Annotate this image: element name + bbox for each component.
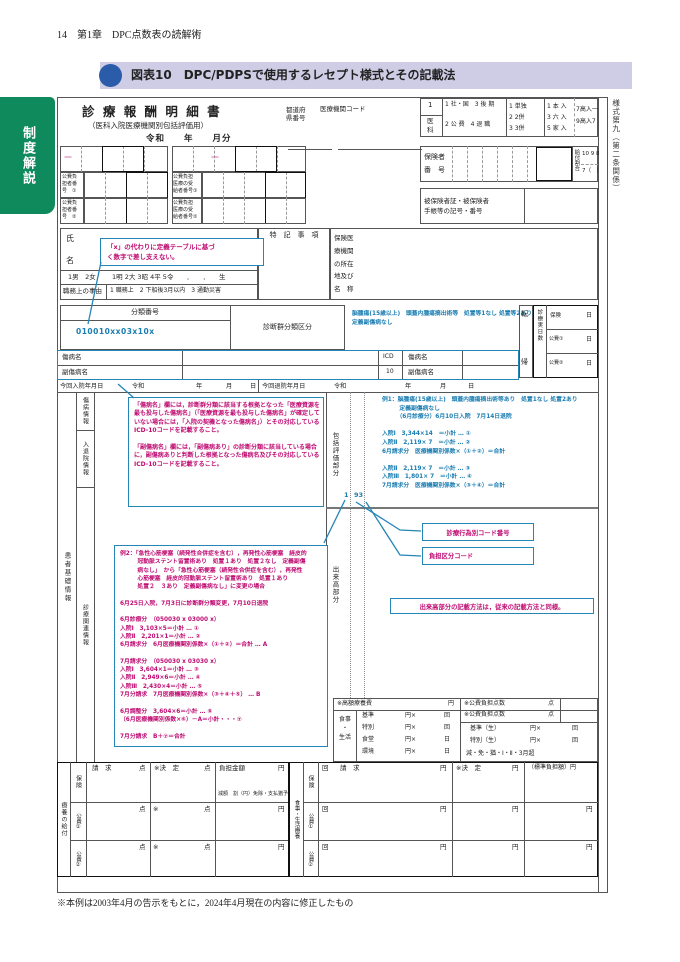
kai-unit: 回 bbox=[444, 713, 450, 720]
yen-unit: 円 bbox=[586, 806, 593, 813]
decision-header: ※決 定 bbox=[456, 765, 481, 772]
decision-header: ※決 定 bbox=[154, 765, 179, 772]
code-column-dotline bbox=[350, 392, 351, 698]
disease-note-text: 「傷病名」欄には，診断群分類に該当する根拠となった「医療資源を最も投与した傷病名… bbox=[134, 402, 320, 469]
outcome-label-2: 帰 bbox=[521, 358, 528, 366]
callout-burden-box: 負担区分コード bbox=[422, 547, 534, 565]
insured-card-label: 被保険者証・被保険者 手帳等の記号・番号 bbox=[424, 196, 489, 216]
figure-bullet-icon bbox=[99, 64, 122, 87]
grid-line bbox=[60, 320, 230, 321]
points-unit: 点 bbox=[204, 844, 211, 851]
icd10-label: 10 bbox=[386, 369, 394, 376]
grid-dash-line bbox=[244, 172, 245, 198]
sample-code-1: 1 bbox=[344, 492, 349, 499]
grid-dash-line bbox=[527, 146, 528, 182]
grid-dash-line bbox=[223, 198, 224, 224]
grid-line bbox=[524, 762, 525, 877]
day-unit: 日 bbox=[586, 361, 592, 368]
grid-line bbox=[303, 802, 598, 803]
example2-text: 例2：「急性心筋梗塞（続発性合併症を含む），再発性心筋梗塞 経皮的 冠動脈ステン… bbox=[120, 550, 322, 741]
grid-line bbox=[60, 284, 258, 285]
icd-label: ICD bbox=[383, 354, 394, 361]
callout-dekidaka-text: 出来高部分の記載方法は，従来の記載方法と同様。 bbox=[420, 602, 565, 611]
burden-amount-header: 負担金額 bbox=[219, 765, 245, 772]
kind-nyuin: 1 本 入 3 六 入 5 家 入 bbox=[547, 101, 567, 134]
grid-line bbox=[560, 698, 561, 722]
kohi-bold-cell bbox=[235, 146, 277, 172]
insurer-number-label: 保険者 番 号 bbox=[424, 151, 445, 177]
yen-unit: 円 bbox=[440, 806, 447, 813]
day-unit: 日 bbox=[586, 313, 592, 320]
kai-unit: 回 bbox=[444, 725, 450, 732]
grid-line bbox=[420, 115, 442, 116]
grid-line bbox=[544, 98, 545, 137]
kohi-recv2-label: 公費負担 医療の受 給者番号② bbox=[173, 200, 197, 221]
note-x-box: 「x」の代わりに定義テーブルに基づ く数字で差し支えない。 bbox=[100, 238, 264, 266]
year-label: 年 bbox=[405, 383, 411, 390]
grid-line bbox=[182, 351, 183, 379]
kohi-bold-cell bbox=[102, 146, 144, 172]
admission-date-label: 今回入院年月日 bbox=[60, 383, 103, 390]
patient-base-info-label: 患者基礎情報 bbox=[62, 552, 72, 603]
row-kohi1-label: 公費① bbox=[307, 813, 315, 830]
kind-ika-label: 医 科 bbox=[427, 117, 434, 135]
disease-note-box: 「傷病名」欄には，診断群分類に該当する根拠となった「医療資源を最も投与した傷病名… bbox=[128, 397, 324, 507]
callout-burden-text: 負担区分コード bbox=[429, 553, 473, 560]
row-kohi2-cell: 公費② bbox=[70, 841, 86, 877]
sub-disease-label: 副傷病名 bbox=[408, 369, 434, 376]
grid-line bbox=[460, 698, 461, 762]
care-info-cell: 診療関連情報 bbox=[76, 487, 94, 762]
example1-text: 例1：脳腫瘍(15歳以上) 頭蓋内腫瘍摘出術等あり 処置1なし 処置2あり 定義… bbox=[382, 396, 596, 491]
outcome-label-1: 転 bbox=[521, 310, 528, 318]
kohi-payer2-label: 公費負 担者番 号 ② bbox=[62, 200, 77, 221]
points-unit: 点 bbox=[139, 765, 146, 772]
row-kohi2-label: 公費② bbox=[74, 851, 82, 868]
days-row-hoken: 保険 bbox=[550, 313, 561, 319]
yen-x-unit: 円× bbox=[530, 726, 541, 733]
yen-unit: 円 bbox=[512, 806, 519, 813]
day-unit: 日 bbox=[586, 337, 592, 344]
kohi-recv1-label: 公費負担 医療の受 給者番号① bbox=[173, 174, 197, 195]
benefit-ratio-label: 給付割合 bbox=[573, 149, 579, 171]
asterisk-mark: ※ bbox=[153, 806, 158, 813]
yen-unit: 円 bbox=[440, 844, 447, 851]
disease-name-label: 傷病名 bbox=[62, 354, 82, 361]
style-number: 様式第九（第二条関係） bbox=[611, 99, 620, 299]
meal-life-care-cell: 食事・生活療養 bbox=[290, 762, 303, 877]
inout-info-cell: 入退院情報 bbox=[76, 430, 94, 487]
institution-code-line bbox=[338, 149, 422, 150]
grid-line bbox=[215, 762, 216, 877]
grid-line bbox=[506, 98, 507, 137]
grid-dash-line bbox=[581, 164, 598, 165]
yen-x-unit: 円× bbox=[405, 749, 416, 756]
footnote: ※本例は2003年4月の告示をもとに，2024年4月現在の内容に修正したもの bbox=[57, 898, 353, 908]
tokubetsu-sei-label: 特別（生） bbox=[470, 738, 500, 745]
form-title: 診 療 報 酬 明 細 書 bbox=[82, 105, 222, 119]
benefit-ratio-bottom: 7（ ） bbox=[582, 168, 602, 174]
kohi-points-label: ※公費負担点数 bbox=[464, 712, 505, 719]
dekidaka-cell: 出来高部分 bbox=[326, 530, 344, 640]
kohi-dash-mark: — bbox=[64, 152, 72, 161]
inout-info-label: 入退院情報 bbox=[81, 441, 90, 476]
day-unit: 日 bbox=[444, 737, 450, 744]
grid-line bbox=[452, 762, 453, 877]
grid-dash-line bbox=[497, 146, 498, 182]
row-kohi1-cell: 公費① bbox=[303, 803, 318, 839]
kai-unit: 回 bbox=[322, 765, 329, 772]
grid-line bbox=[58, 365, 518, 366]
code-column-dotline bbox=[364, 392, 365, 698]
yen-unit: 円 bbox=[440, 765, 447, 772]
class-number-value: 010010xx03x10x bbox=[76, 328, 155, 337]
row-hoken-cell: 保険 bbox=[303, 764, 318, 800]
request-header: 請 求 bbox=[340, 765, 360, 772]
section-divider-line bbox=[326, 507, 598, 509]
row-kohi2-label: 公費② bbox=[307, 851, 315, 868]
yen-unit: 円 bbox=[512, 844, 519, 851]
grid-line bbox=[318, 762, 319, 877]
ryoyo-label: 療養の給付 bbox=[59, 802, 68, 837]
kind-ika-number: 1 bbox=[428, 101, 432, 109]
grid-dash-line bbox=[244, 198, 245, 224]
dpc-category-value: 脳腫瘍(15歳以上) 頭蓋内腫瘍摘出術等 処置等1なし 処置等2あり 定義副傷病… bbox=[352, 310, 532, 328]
grid-dash-line bbox=[482, 146, 483, 182]
hokatsu-label: 包括評価部分 bbox=[330, 432, 340, 477]
grid-dash-line bbox=[277, 146, 278, 172]
book-page: 14 第1章 DPC点数表の読解術 図表10 DPC/PDPSで使用するレセプト… bbox=[0, 0, 680, 962]
kai-unit: 回 bbox=[322, 806, 329, 813]
callout-code-box: 診療行為別コード番号 bbox=[422, 523, 534, 541]
grid-line bbox=[546, 329, 598, 330]
meal-life-label: 食事 ・ 生活 bbox=[334, 715, 356, 742]
ryoyo-cell: 療養の給付 bbox=[57, 762, 70, 877]
tokki-header: 特 記 事 項 bbox=[258, 231, 330, 239]
points-unit: 点 bbox=[204, 806, 211, 813]
kohi-points-label: ※公費負担点数 bbox=[464, 701, 505, 708]
era-label: 令和 bbox=[132, 383, 144, 390]
grid-line bbox=[546, 305, 547, 378]
row-kohi1-label: 公費① bbox=[74, 813, 82, 830]
kohi-cells bbox=[84, 198, 168, 224]
yen-x-unit: 円× bbox=[405, 737, 416, 744]
sex-options: 1男 2女 bbox=[68, 274, 96, 281]
dpc-category-label: 診断群分類区分 bbox=[230, 323, 345, 331]
disease-name-label: 傷病名 bbox=[408, 354, 428, 361]
hospital-box bbox=[330, 228, 598, 300]
reduction-note: 減額 割（円）免除・支払猶予 bbox=[218, 792, 288, 798]
kind-row2: 2 公 費 4 退 職 bbox=[445, 122, 490, 129]
chapter-tab: 制度解説 bbox=[0, 97, 55, 214]
request-header: 請 求 bbox=[92, 765, 112, 772]
grid-line bbox=[462, 351, 463, 379]
yen-unit: 円 bbox=[586, 844, 593, 851]
days-row-kohi2: 公費② bbox=[549, 361, 563, 367]
class-number-label: 分類番号 bbox=[60, 308, 230, 316]
form-inner-right-line bbox=[598, 97, 599, 893]
row-hoken-cell: 保険 bbox=[70, 764, 86, 800]
grid-line bbox=[60, 270, 258, 271]
points-unit: 点 bbox=[139, 806, 146, 813]
yen-unit: 円 bbox=[278, 806, 285, 813]
grid-line bbox=[356, 710, 357, 762]
sub-disease-label: 副傷病名 bbox=[62, 369, 88, 376]
example2-box: 例2：「急性心筋梗塞（続発性合併症を含む），再発性心筋梗塞 経皮的 冠動脈ステン… bbox=[114, 545, 328, 747]
yen-unit: 円 bbox=[278, 844, 285, 851]
meal-row-kijun: 基準 bbox=[362, 713, 374, 720]
era-month-field: 令和 年 月分 bbox=[146, 135, 232, 145]
grid-dash-line bbox=[144, 146, 145, 172]
kind-row1: 1 社・国 3 後 期 bbox=[445, 102, 494, 109]
grid-line bbox=[258, 380, 259, 392]
yen-unit: 円 bbox=[512, 765, 519, 772]
grid-dash-line bbox=[147, 198, 148, 224]
grid-dash-line bbox=[105, 172, 106, 198]
meal-row-shokudo: 食堂 bbox=[362, 737, 374, 744]
sample-code-93: 93 bbox=[354, 492, 363, 499]
discharge-date-label: 今回退院年月日 bbox=[262, 383, 305, 390]
grid-line bbox=[94, 392, 95, 762]
kind-tandoku: 1 単独 2 2併 3 3併 bbox=[509, 101, 527, 134]
grid-line bbox=[460, 722, 598, 723]
grid-dash-line bbox=[105, 198, 106, 224]
dekidaka-label: 出来高部分 bbox=[330, 566, 340, 604]
month-label: 月 bbox=[226, 383, 232, 390]
name-label-2: 名 bbox=[66, 256, 74, 265]
grid-line bbox=[546, 353, 598, 354]
asterisk-mark: ※ bbox=[153, 844, 158, 851]
reduction-options: 減・免・猶・Ⅰ・Ⅱ・3月超 bbox=[466, 751, 535, 758]
kai-unit: 回 bbox=[322, 844, 329, 851]
row-kohi2-cell: 公費② bbox=[303, 841, 318, 877]
row-hoken-label: 保険 bbox=[74, 775, 83, 789]
grid-dash-line bbox=[193, 146, 194, 172]
callout-dekidaka-box: 出来高部分の記載方法は，従来の記載方法と同様。 bbox=[390, 598, 594, 614]
day-unit: 日 bbox=[444, 749, 450, 756]
note-x-text: 「x」の代わりに定義テーブルに基づ く数字で差し支えない。 bbox=[107, 243, 215, 262]
kohi-payer1-label: 公費負 担者番 号 ① bbox=[62, 174, 77, 195]
grid-dash-line bbox=[286, 198, 287, 224]
points-unit: 点 bbox=[548, 712, 554, 719]
form-subtitle: （医科入院医療機関別包括評価用） bbox=[88, 122, 208, 131]
year-label: 年 bbox=[196, 383, 202, 390]
grid-dash-line bbox=[223, 172, 224, 198]
day-label: 日 bbox=[250, 383, 256, 390]
grid-line bbox=[442, 98, 443, 137]
yen-x-unit: 円× bbox=[405, 713, 416, 720]
kijun-sei-label: 基準（生） bbox=[470, 726, 500, 733]
care-info-label: 診療関連情報 bbox=[81, 604, 90, 646]
meal-life-care-label: 食事・生活療養 bbox=[293, 800, 301, 839]
kind-kounyu: 7高入一 9高入7 bbox=[576, 104, 598, 128]
figure-title: 図表10 DPC/PDPSで使用するレセプト様式とその記載法 bbox=[131, 69, 455, 83]
grid-dash-line bbox=[467, 146, 468, 182]
yen-unit: 円 bbox=[448, 701, 454, 708]
pref-number-label: 都道府 県番号 bbox=[286, 106, 306, 122]
hospital-label: 保険医 療機関 の所在 地及び 名 称 bbox=[334, 232, 354, 296]
patient-base-info-cell: 患者基礎情報 bbox=[58, 392, 76, 762]
kohi-cells bbox=[202, 198, 306, 224]
grid-line bbox=[524, 188, 525, 224]
points-unit: 点 bbox=[204, 765, 211, 772]
insurer-bold-cell bbox=[536, 147, 572, 181]
benefit-ratio-top: 10 9 8 bbox=[582, 151, 600, 157]
grid-line bbox=[70, 802, 288, 803]
standard-burden-header: （標準負担額）円 bbox=[528, 765, 576, 772]
chapter-tab-label: 制度解説 bbox=[18, 126, 37, 186]
row-kohi1-cell: 公費① bbox=[70, 803, 86, 839]
grid-dash-line bbox=[81, 146, 82, 172]
hokatsu-cell: 包括評価部分 bbox=[326, 398, 344, 510]
points-unit: 点 bbox=[548, 701, 554, 708]
meal-row-kankyo: 環境 bbox=[362, 749, 374, 756]
points-unit: 点 bbox=[139, 844, 146, 851]
era-label: 令和 bbox=[334, 383, 346, 390]
grid-line bbox=[86, 762, 87, 877]
name-label-1: 氏 bbox=[66, 234, 74, 243]
grid-line bbox=[106, 284, 107, 300]
duty-label: 職務上の事由 bbox=[63, 288, 102, 295]
disease-info-label: 傷病情報 bbox=[81, 397, 90, 425]
days-row-kohi1: 公費① bbox=[549, 337, 563, 343]
grid-line bbox=[402, 351, 403, 379]
yen-unit: 円 bbox=[278, 765, 285, 772]
institution-code-label: 医療機関コード bbox=[320, 106, 366, 113]
grid-dash-line bbox=[452, 146, 453, 182]
treatment-days-label: 診療実日数 bbox=[536, 309, 542, 342]
birth-era-options: 1明 2大 3昭 4平 5令 ． ． 生 bbox=[112, 274, 225, 281]
row-hoken-label: 保険 bbox=[306, 775, 315, 789]
running-header: 14 第1章 DPC点数表の読解術 bbox=[57, 30, 201, 42]
yen-x-unit: 円× bbox=[530, 738, 541, 745]
grid-line bbox=[303, 840, 598, 841]
kai-unit: 回 bbox=[572, 726, 578, 733]
grid-line bbox=[378, 351, 379, 379]
payment-table bbox=[57, 762, 598, 877]
grid-line bbox=[70, 840, 288, 841]
callout-code-text: 診療行為別コード番号 bbox=[447, 528, 510, 537]
grid-line bbox=[150, 762, 151, 877]
yen-x-unit: 円× bbox=[405, 725, 416, 732]
day-label: 日 bbox=[468, 383, 474, 390]
kogaku-label: ※高額療養費 bbox=[337, 701, 372, 708]
duty-options: 1 職務上 2 下船後3月以内 3 通勤災害 bbox=[110, 288, 221, 295]
disease-info-cell: 傷病情報 bbox=[76, 392, 94, 430]
kai-unit: 回 bbox=[572, 738, 578, 745]
grid-line bbox=[57, 392, 598, 393]
grid-dash-line bbox=[512, 146, 513, 182]
meal-row-tokubetsu: 特別 bbox=[362, 725, 374, 732]
month-label: 月 bbox=[440, 383, 446, 390]
kohi-dash-mark: — bbox=[211, 152, 219, 161]
grid-dash-line bbox=[574, 98, 575, 137]
